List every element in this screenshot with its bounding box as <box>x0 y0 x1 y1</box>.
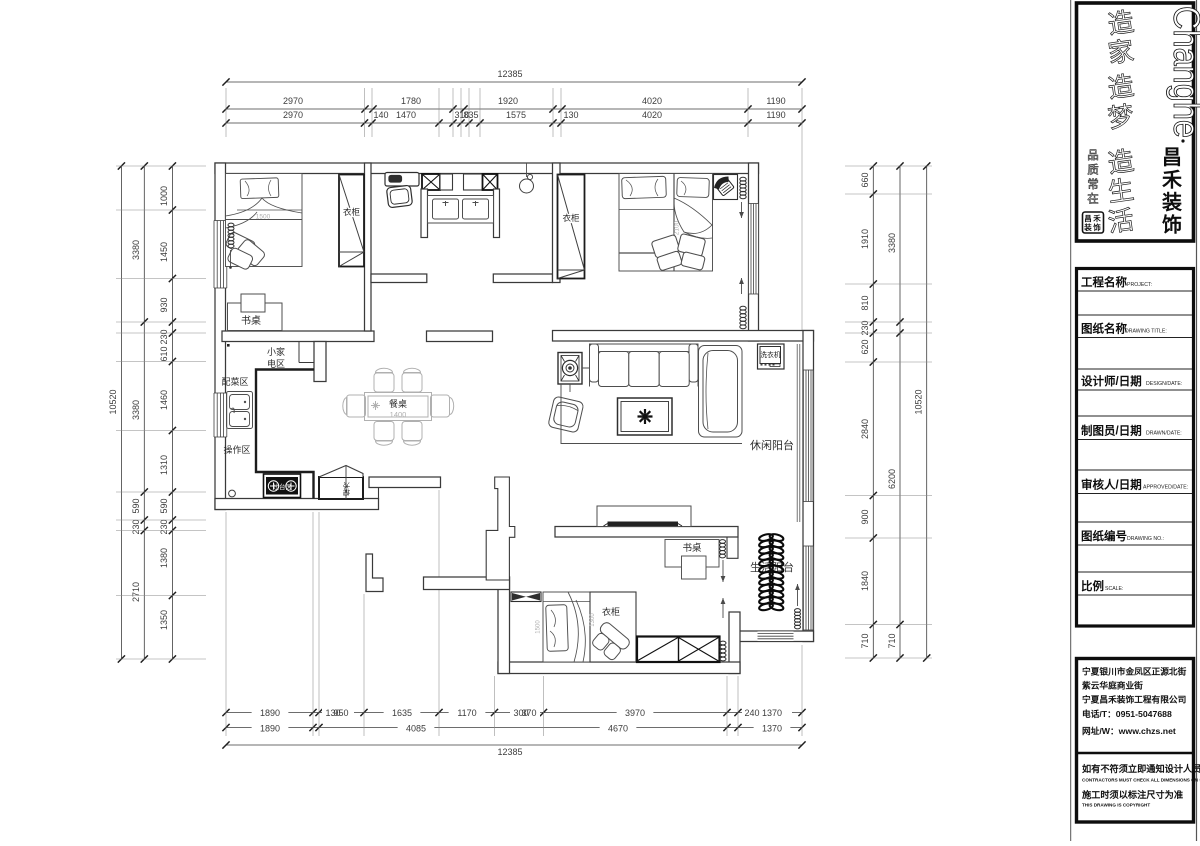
svg-text:1470: 1470 <box>396 110 416 120</box>
svg-text:工程名称: 工程名称 <box>1081 275 1127 289</box>
svg-text:1500: 1500 <box>536 620 542 634</box>
svg-text:2970: 2970 <box>283 110 303 120</box>
svg-text:禾: 禾 <box>1162 169 1182 192</box>
svg-text:4020: 4020 <box>642 110 662 120</box>
svg-text:2970: 2970 <box>283 96 303 106</box>
svg-text:10520: 10520 <box>914 389 924 414</box>
svg-text:3970: 3970 <box>625 708 645 718</box>
svg-text:230: 230 <box>131 519 141 534</box>
svg-text:品: 品 <box>1087 149 1099 162</box>
svg-text:在: 在 <box>1087 193 1099 206</box>
svg-text:电话/T：0951-5047688: 电话/T：0951-5047688 <box>1082 708 1172 719</box>
svg-text:3380: 3380 <box>131 240 141 260</box>
svg-text:710: 710 <box>887 633 897 648</box>
svg-text:230: 230 <box>159 519 169 534</box>
svg-text:饰: 饰 <box>1162 213 1182 237</box>
svg-text:DESIGN/DATE:: DESIGN/DATE: <box>1146 381 1182 387</box>
svg-text:灶台区: 灶台区 <box>273 482 293 491</box>
svg-text:6200: 6200 <box>887 469 897 489</box>
svg-text:130: 130 <box>563 110 578 120</box>
svg-text:书桌: 书桌 <box>682 542 702 554</box>
svg-text:4670: 4670 <box>608 724 628 734</box>
svg-text:590: 590 <box>159 498 169 513</box>
svg-text:620: 620 <box>860 339 870 354</box>
svg-text:1190: 1190 <box>766 96 785 106</box>
svg-text:洗衣机: 洗衣机 <box>760 350 781 359</box>
svg-text:图纸名称: 图纸名称 <box>1081 322 1127 336</box>
svg-text:2710: 2710 <box>131 582 141 602</box>
svg-text:900: 900 <box>860 509 870 524</box>
svg-text:活: 活 <box>1106 204 1136 237</box>
svg-text:紫云华庭商业街: 紫云华庭商业街 <box>1082 680 1143 691</box>
svg-text:网址/W：www.chzs.net: 网址/W：www.chzs.net <box>1082 725 1176 736</box>
svg-text:宁夏银川市金凤区正源北街: 宁夏银川市金凤区正源北街 <box>1082 666 1187 677</box>
svg-text:3380: 3380 <box>887 233 897 253</box>
svg-text:1920: 1920 <box>498 96 518 106</box>
svg-text:宁夏昌禾装饰工程有限公司: 宁夏昌禾装饰工程有限公司 <box>1082 694 1186 705</box>
svg-text:1890: 1890 <box>260 708 280 718</box>
svg-text:DRAWING TITLE:: DRAWING TITLE: <box>1125 329 1167 335</box>
svg-text:SCALE:: SCALE: <box>1105 586 1123 592</box>
svg-text:1890: 1890 <box>260 724 280 734</box>
svg-text:小家: 小家 <box>267 346 285 357</box>
svg-text:2100: 2100 <box>674 220 681 235</box>
svg-text:DRAWING NO.:: DRAWING NO.: <box>1127 536 1164 542</box>
svg-text:PROJECT:: PROJECT: <box>1127 282 1152 288</box>
svg-text:制图员/日期: 制图员/日期 <box>1081 424 1142 438</box>
svg-text:930: 930 <box>159 297 169 312</box>
svg-text:1460: 1460 <box>159 390 169 410</box>
svg-text:1350: 1350 <box>159 610 169 630</box>
svg-text:电区: 电区 <box>267 358 285 369</box>
svg-text:240: 240 <box>744 708 759 718</box>
svg-text:610: 610 <box>159 346 169 361</box>
svg-text:禾: 禾 <box>1093 213 1101 223</box>
svg-text:质: 质 <box>1087 164 1099 177</box>
svg-text:1400: 1400 <box>390 410 407 419</box>
svg-text:造: 造 <box>1106 70 1136 103</box>
svg-text:如有不符须立即通知设计人员: 如有不符须立即通知设计人员 <box>1082 763 1200 774</box>
svg-text:140: 140 <box>373 110 388 120</box>
svg-text:CONTRACTORS MUST CHECK ALL DIM: CONTRACTORS MUST CHECK ALL DIMENSIONS ON… <box>1082 778 1200 783</box>
svg-text:835: 835 <box>463 110 478 120</box>
svg-text:1635: 1635 <box>392 708 412 718</box>
svg-text:950: 950 <box>333 708 348 718</box>
svg-text:昌: 昌 <box>1162 146 1182 169</box>
svg-text:1190: 1190 <box>766 110 785 120</box>
svg-text:230: 230 <box>159 329 169 344</box>
svg-text:10520: 10520 <box>108 389 118 414</box>
svg-text:1500: 1500 <box>256 214 271 221</box>
svg-text:衣柜: 衣柜 <box>562 213 580 223</box>
svg-text:1910: 1910 <box>860 229 870 249</box>
svg-text:审核人/日期: 审核人/日期 <box>1081 478 1142 492</box>
svg-text:12385: 12385 <box>497 69 522 79</box>
svg-text:1300: 1300 <box>590 613 596 627</box>
svg-text:设计师/日期: 设计师/日期 <box>1081 374 1142 388</box>
svg-text:操作区: 操作区 <box>223 444 250 455</box>
svg-text:4020: 4020 <box>642 96 662 106</box>
svg-text:配菜区: 配菜区 <box>221 376 248 387</box>
svg-text:660: 660 <box>860 172 870 187</box>
svg-text:比例: 比例 <box>1081 579 1104 593</box>
svg-text:1575: 1575 <box>506 110 526 120</box>
svg-text:APPROVED/DATE:: APPROVED/DATE: <box>1143 485 1188 491</box>
svg-text:1000: 1000 <box>159 186 169 206</box>
svg-text:昌: 昌 <box>1084 213 1092 223</box>
svg-text:装: 装 <box>1083 222 1092 232</box>
svg-text:THIS DRAWING IS COPYRIGHT: THIS DRAWING IS COPYRIGHT <box>1082 803 1150 808</box>
svg-text:2840: 2840 <box>860 419 870 439</box>
svg-text:3380: 3380 <box>131 400 141 420</box>
svg-text:装: 装 <box>1161 190 1182 214</box>
svg-text:生: 生 <box>1106 174 1136 207</box>
svg-text:590: 590 <box>131 498 141 513</box>
svg-text:休闲阳台: 休闲阳台 <box>750 438 794 452</box>
svg-text:DRAWN/DATE:: DRAWN/DATE: <box>1146 431 1182 437</box>
svg-text:1780: 1780 <box>401 96 421 106</box>
svg-text:4085: 4085 <box>406 724 426 734</box>
svg-text:Changhe: Changhe <box>1166 6 1200 138</box>
svg-text:施工时须以标注尺寸为准: 施工时须以标注尺寸为准 <box>1082 789 1183 800</box>
svg-text:常: 常 <box>1087 178 1099 191</box>
svg-text:1370: 1370 <box>762 708 782 718</box>
svg-text:图纸编号: 图纸编号 <box>1081 529 1127 543</box>
svg-text:1370: 1370 <box>762 724 782 734</box>
svg-text:12385: 12385 <box>497 747 522 757</box>
svg-text:1840: 1840 <box>860 571 870 591</box>
svg-text:衣柜: 衣柜 <box>343 207 361 217</box>
svg-text:书桌: 书桌 <box>241 314 261 327</box>
svg-text:810: 810 <box>860 295 870 310</box>
svg-text:家: 家 <box>1106 35 1136 68</box>
svg-text:1170: 1170 <box>457 708 476 718</box>
svg-text:710: 710 <box>860 633 870 648</box>
svg-text:餐桌: 餐桌 <box>389 398 407 409</box>
svg-text:1450: 1450 <box>159 242 169 262</box>
svg-text:梦: 梦 <box>1106 100 1136 133</box>
svg-text:370: 370 <box>521 708 536 718</box>
svg-text:饰: 饰 <box>1093 222 1101 232</box>
svg-text:1310: 1310 <box>159 455 169 475</box>
svg-text:1380: 1380 <box>159 548 169 568</box>
svg-text:冰箱: 冰箱 <box>342 482 351 496</box>
svg-text:衣柜: 衣柜 <box>602 606 620 617</box>
